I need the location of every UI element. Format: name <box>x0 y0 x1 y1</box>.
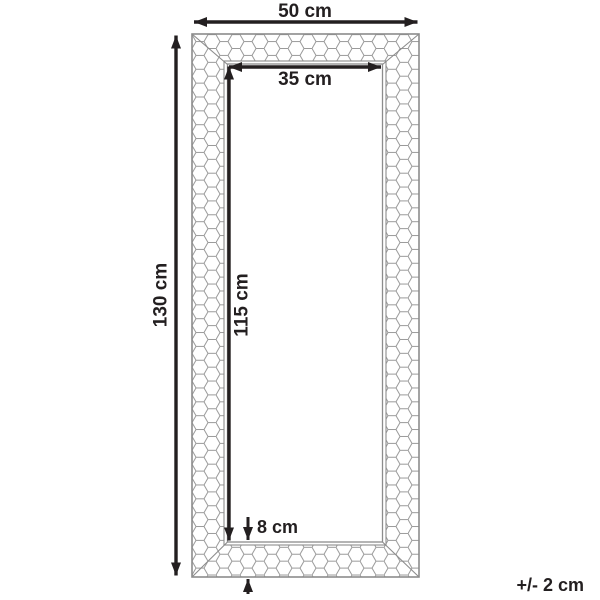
label-tolerance: +/- 2 cm <box>516 575 584 595</box>
label-inner-height: 115 cm <box>232 273 253 336</box>
diagram-svg: 50 cm 35 cm 130 cm 115 cm 8 cm +/- 2 cm <box>0 0 600 600</box>
label-inner-width: 35 cm <box>278 69 332 90</box>
mirror-frame <box>192 34 419 577</box>
label-outer-width: 50 cm <box>278 1 332 22</box>
label-outer-height: 130 cm <box>151 263 172 327</box>
mirror-dimension-diagram: 50 cm 35 cm 130 cm 115 cm 8 cm +/- 2 cm <box>0 0 600 600</box>
label-frame-depth: 8 cm <box>257 517 298 537</box>
